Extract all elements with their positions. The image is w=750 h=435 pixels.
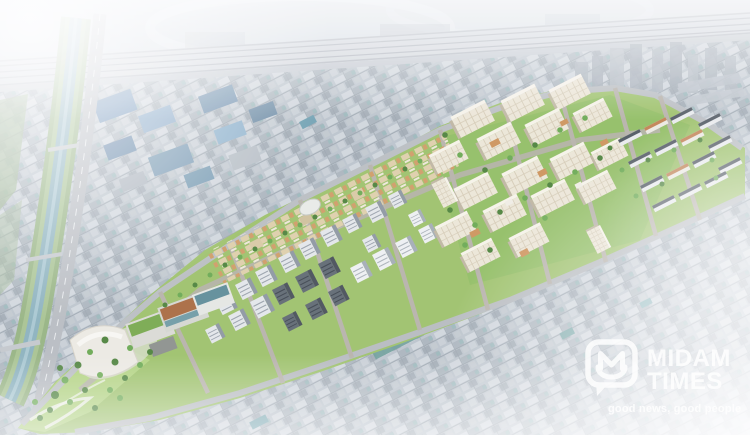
brand-name: MIDAM TIMES [647,347,731,393]
watermark: MIDAM TIMES good news, good people [583,338,750,415]
brand-name-line1: MIDAM [647,347,731,370]
speech-bubble-m-icon [583,338,640,400]
brand-name-line2: TIMES [647,370,731,393]
aerial-rendering-screenshot: MIDAM TIMES good news, good people [0,0,750,435]
brand-tagline: good news, good people [608,403,750,415]
